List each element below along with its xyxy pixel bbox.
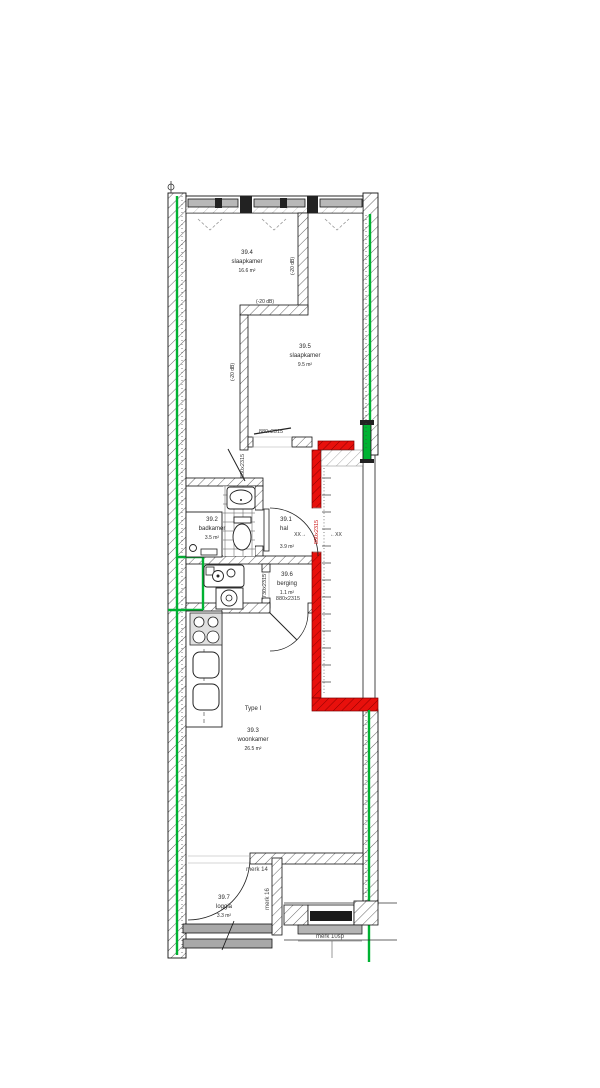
door-leaf-woonkamer [270,613,297,640]
loggia-balustrade-2 [183,939,272,948]
type-label: Type I [245,706,262,712]
window-mid-post-1 [215,198,222,208]
door-label-395: 880x2315 [259,429,283,435]
wall-395-bottom-left [248,437,253,447]
merk-14-label: merk 14 [246,867,268,873]
top-facade [168,181,363,230]
wall-woonkamer-bottom [250,853,363,864]
loggia-balustrade-1 [183,924,272,933]
room-395-id: 39.5 [299,344,311,350]
window-frame-1 [188,199,238,207]
room-391-area: 3.9 m² [280,544,295,550]
badkamer-fixtures [186,486,255,557]
room-393-name: woonkamer [236,737,268,743]
room-396-name: berging [277,581,297,587]
bottom-wall-hatch-left [284,905,308,925]
acoustic-label-vertical-left: (-20 dB) [230,363,236,381]
floor-plan-canvas: 39.4 slaapkamer 16.6 m² 39.5 slaapkamer … [0,0,600,1088]
room-396-id: 39.6 [281,572,293,578]
wall-badkamer-right-upper [255,486,263,510]
red-wall-vertical-lower [312,552,321,698]
berging-fixtures [204,565,244,609]
merk-10sp-label: merk 10sp [316,934,345,940]
vent-chevron-1 [198,219,222,230]
room-392-name: badkamer [199,526,226,532]
wall-berging-top-stub [262,564,270,572]
acoustic-label-horizontal: (-20 dB) [256,299,274,305]
room-395-area: 9.5 m² [298,362,313,368]
wall-394-arm [240,315,248,450]
merk-16-label: merk 16 [265,888,271,910]
wall-loggia-right [272,858,282,935]
shower-drain [190,545,197,552]
washbasin-drain [240,499,242,501]
room-392-area: 3.5 m² [205,535,220,541]
burner-4 [207,631,219,643]
bottom-window-dark-band [310,911,352,921]
burner-1 [194,617,204,627]
bottom-window-sill [298,925,362,934]
fire-walls [312,441,378,711]
boiler-circle-1-dot [217,575,220,578]
door-leaf-badkamer [264,509,269,551]
green-window-cap-top [360,420,374,425]
room-393-id: 39.3 [247,728,259,734]
window-frame-3 [320,199,362,207]
bottom-corner-block [354,901,378,925]
room-391-name: hal [280,526,288,532]
burner-2 [208,617,218,627]
red-wall-top [318,441,354,450]
green-window-right [363,424,371,460]
wall-394-395-step [240,305,308,315]
entrance-door-label: 880x2315 [314,520,320,544]
window-post-1 [240,196,252,213]
room-397-id: 39.7 [218,895,230,901]
sink-1 [193,652,219,678]
corridor-detail [321,450,363,695]
corridor-tick-marks [322,478,331,682]
room-395-name: slaapkamer [289,353,320,359]
kitchen-fixtures [186,611,222,727]
washbasin-icon [230,490,252,504]
room-394-name: slaapkamer [231,259,262,265]
room-392-id: 39.2 [206,517,218,523]
window-frame-2 [254,199,305,207]
wall-badkamer-top [186,478,263,486]
vent-chevron-3 [325,219,349,230]
door-label-woonkamer: 880x2315 [276,596,300,602]
clearance-label-left: XX→ [294,532,306,538]
clearance-label-right: ←XX [330,532,342,538]
window-post-2 [307,196,318,213]
right-exterior-wall-lower [363,710,378,905]
shower-step [201,549,217,555]
burner-3 [193,631,205,643]
window-mid-post-2 [280,198,287,208]
room-394-area: 16.6 m² [239,268,256,274]
wall-395-bottom-right [292,437,312,447]
door-label-394: 880x2315 [240,454,246,478]
room-391-id: 39.1 [280,517,292,523]
top-wall-hatch [186,207,363,213]
toilet-cistern [234,517,251,523]
sink-2 [193,684,219,710]
corridor-top-wall [321,450,363,466]
red-wall-vertical-upper [312,450,321,508]
vent-chevron-2 [262,219,286,230]
acoustic-label-vertical-right: (-20 dB) [290,257,296,275]
room-394-id: 39.4 [241,250,253,256]
wall-394-395-vertical [298,213,308,310]
floor-plan-page: 39.4 slaapkamer 16.6 m² 39.5 slaapkamer … [0,0,600,1088]
door-arc-loggia [188,858,250,920]
room-393-area: 26.5 m² [245,746,262,752]
room-397-name: loggia [216,904,233,910]
boiler-circle-2 [227,569,235,577]
toilet-icon [233,524,251,550]
green-window-cap-bottom [360,459,374,463]
washer-drum-inner [226,595,232,601]
red-wall-bottom [312,698,378,711]
room-397-area: 3.3 m² [217,913,232,919]
door-label-berging: 730x2315 [262,574,268,598]
